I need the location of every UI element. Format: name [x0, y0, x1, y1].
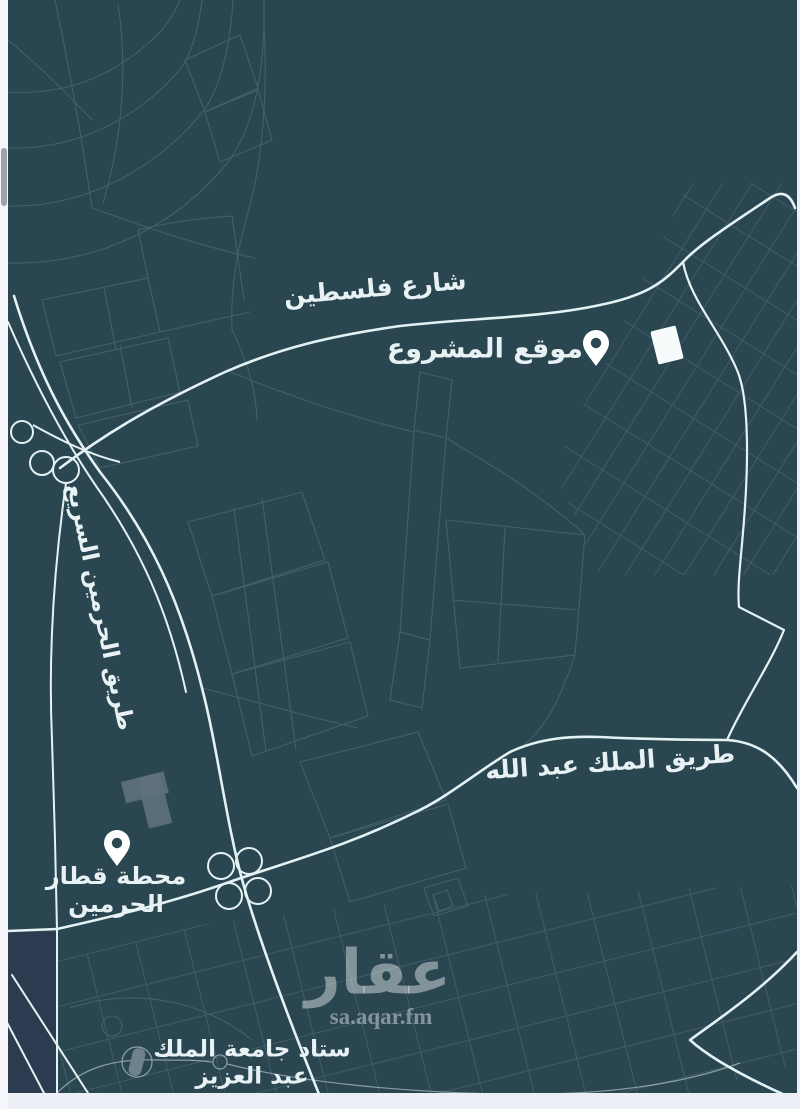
map-graphics: [8, 0, 797, 1093]
left-scrollbar-track[interactable]: [0, 0, 8, 1109]
stadium-label-line1: ستاد جامعة الملك: [153, 1036, 351, 1063]
page: شارع فلسطين موقع المشروع طريق الملك عبد …: [0, 0, 800, 1109]
train-station-label: محطة قطار الحرمين: [46, 863, 186, 919]
bottom-left-district-panel: [8, 932, 57, 1093]
stadium-label: ستاد جامعة الملك عبد العزيز: [153, 1036, 351, 1089]
map-background: [8, 0, 797, 1093]
scrollbar-thumb[interactable]: [1, 148, 7, 206]
train-station-label-line1: محطة قطار: [46, 863, 186, 891]
project-location-label: موقع المشروع: [387, 334, 583, 365]
stadium-label-line2: عبد العزيز: [153, 1063, 351, 1090]
map-image[interactable]: شارع فلسطين موقع المشروع طريق الملك عبد …: [8, 0, 797, 1093]
train-station-label-line2: الحرمين: [46, 891, 186, 919]
map-canvas: شارع فلسطين موقع المشروع طريق الملك عبد …: [8, 0, 797, 1093]
aqar-url-watermark: sa.aqar.fm: [330, 1004, 433, 1030]
aqar-logo-watermark: عقار: [305, 936, 451, 1009]
bottom-page-strip: [8, 1093, 800, 1109]
